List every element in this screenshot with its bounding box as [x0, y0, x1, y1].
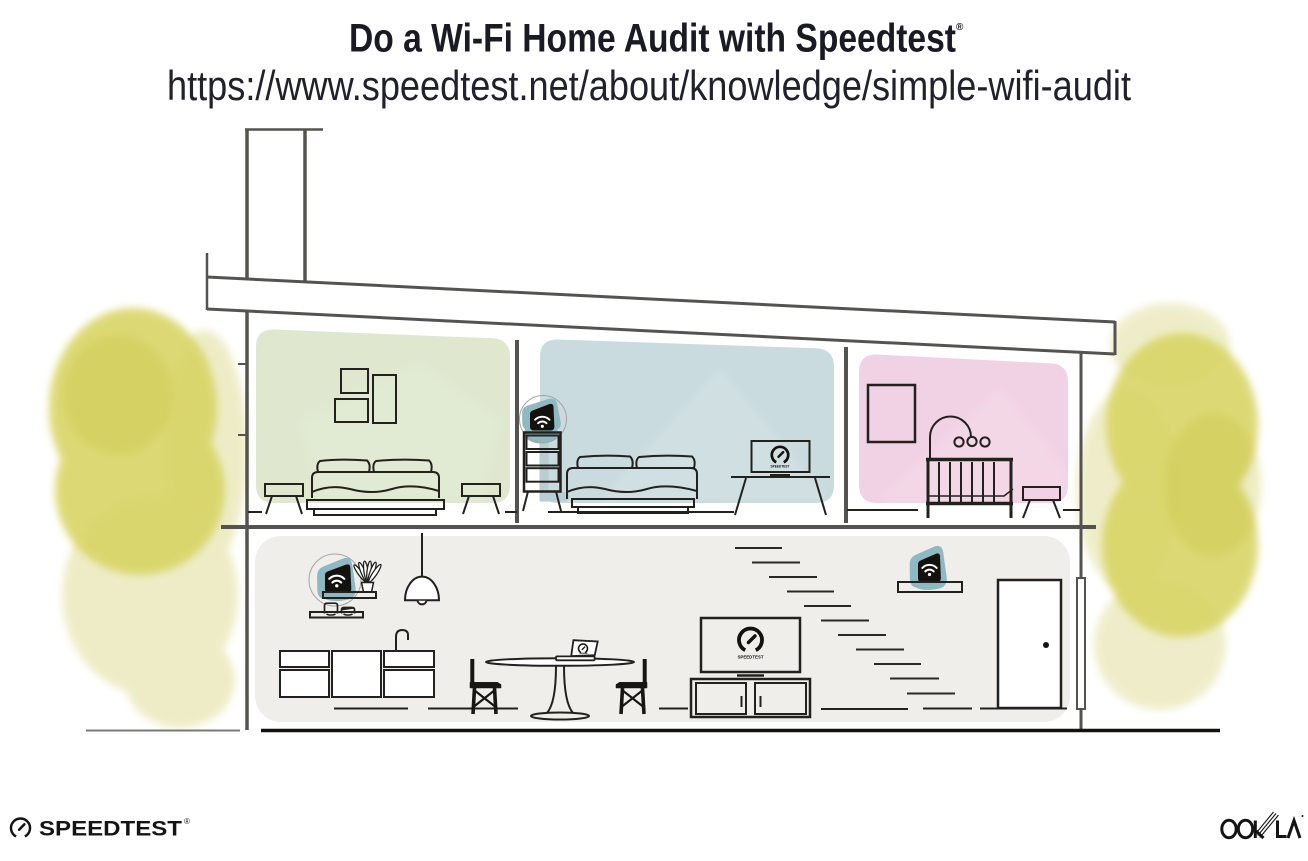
svg-text:SPEEDTEST: SPEEDTEST: [738, 655, 764, 660]
svg-text:®: ®: [956, 22, 964, 33]
svg-text:SPEEDTEST: SPEEDTEST: [39, 817, 182, 841]
svg-text:®: ®: [184, 817, 190, 826]
svg-text:Do a Wi-Fi Home Audit with Spe: Do a Wi-Fi Home Audit with Speedtest: [349, 17, 956, 61]
svg-text:https://www.speedtest.net/abou: https://www.speedtest.net/about/knowledg…: [167, 62, 1131, 109]
svg-text:SPEEDTEST: SPEEDTEST: [771, 465, 791, 469]
